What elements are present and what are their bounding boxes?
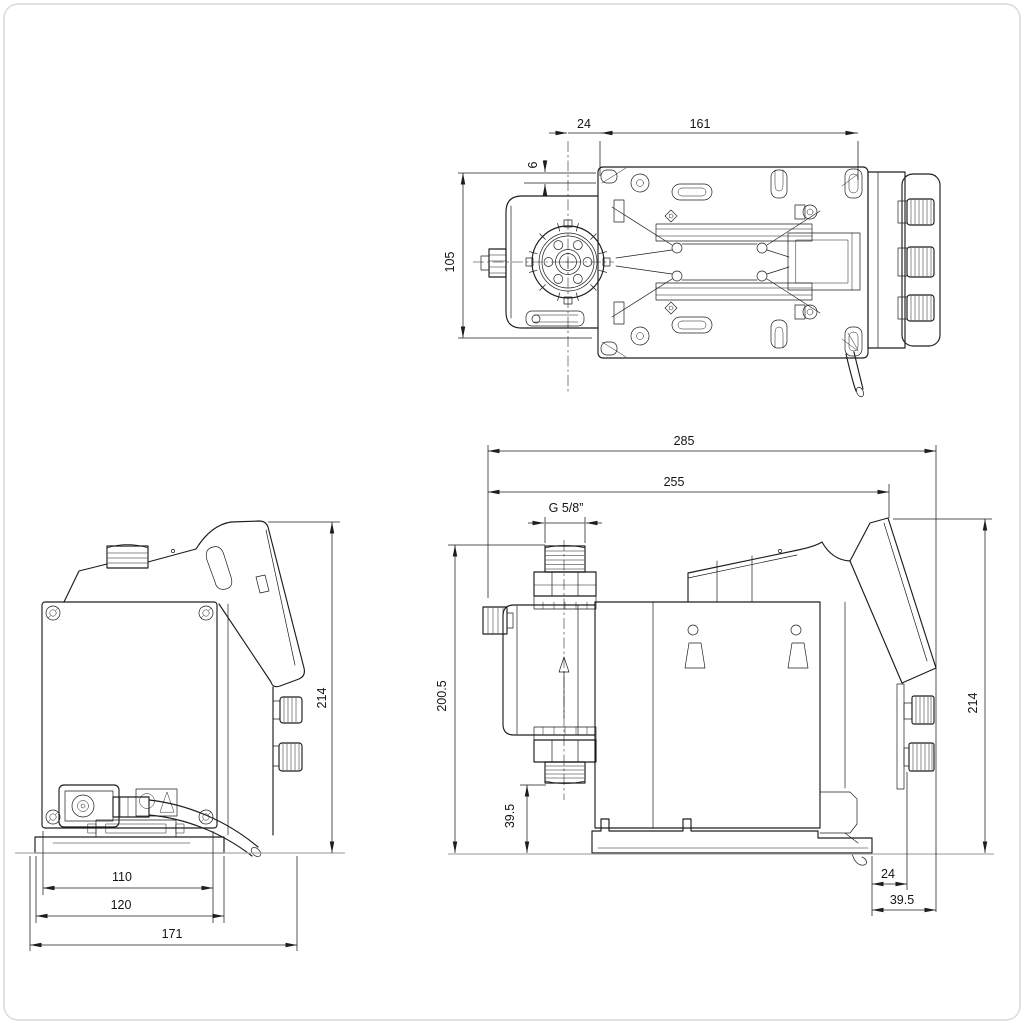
dim-label-255: 255 (664, 475, 685, 489)
top-shaft-fitting (481, 249, 506, 277)
dim-label-161: 161 (690, 117, 711, 131)
wall-mount-hole-right (791, 625, 801, 635)
wall-mount-hole-left (688, 625, 698, 635)
drawing-canvas: 24 161 6 105 (0, 0, 1024, 1024)
side-dimensions: 285 255 G 5/8” 200.5 39.5 214 24 39.5 (435, 434, 994, 916)
dim-label-285: 285 (674, 434, 695, 448)
side-control-housing (688, 518, 936, 843)
dim-label-6: 6 (526, 161, 540, 168)
side-discharge-fitting (534, 540, 596, 800)
front-view: 214 110 120 171 (15, 521, 345, 951)
side-gland-lower (904, 743, 934, 771)
dim-label-120: 120 (111, 898, 132, 912)
pump-dimensional-drawing: 24 161 6 105 (0, 0, 1024, 1024)
side-pump-head (483, 605, 596, 784)
power-cable-top (846, 352, 865, 398)
front-dimensions: 214 110 120 171 (15, 522, 345, 951)
deaeration-knob (483, 607, 513, 634)
screw-top-right (199, 606, 213, 620)
dim-label-214-side: 214 (966, 693, 980, 714)
screw-top-left (46, 606, 60, 620)
front-gland-upper (273, 697, 302, 723)
top-view: 24 161 6 105 (443, 117, 940, 398)
front-control-arm (171, 521, 304, 687)
front-right-side (228, 604, 302, 835)
dim-label-110: 110 (112, 870, 132, 884)
side-base-plate (592, 819, 872, 865)
front-base-plate (35, 837, 224, 853)
screenshot-border (4, 4, 1020, 1020)
cable-gland-top (898, 199, 934, 225)
side-gland-upper (904, 696, 934, 724)
top-mounting-plate (598, 167, 868, 358)
dim-label-39-5-bottom: 39.5 (890, 893, 914, 907)
dim-label-105: 105 (443, 252, 457, 273)
wall-mount-key-left (685, 643, 705, 668)
front-top-assembly (64, 545, 196, 603)
screw-bottom-left (46, 810, 60, 824)
dim-label-24-side: 24 (881, 867, 895, 881)
mains-connector (59, 785, 149, 827)
dim-label-thread: G 5/8” (549, 501, 584, 515)
front-face-plate (42, 602, 217, 828)
dim-label-171: 171 (162, 927, 183, 941)
wall-mount-key-right (788, 643, 808, 668)
dim-label-214-front: 214 (315, 688, 329, 709)
front-bottom-assembly (35, 785, 262, 858)
cable-gland-bottom (898, 295, 934, 321)
dim-label-39-5-left: 39.5 (503, 804, 517, 828)
cable-gland-middle (898, 247, 934, 277)
dim-label-200-5: 200.5 (435, 680, 449, 711)
dim-label-24-top: 24 (577, 117, 591, 131)
front-gland-lower (273, 743, 302, 771)
warning-label-plate (136, 789, 177, 816)
side-view: 285 255 G 5/8” 200.5 39.5 214 24 39.5 (435, 434, 994, 916)
side-body (595, 602, 820, 828)
